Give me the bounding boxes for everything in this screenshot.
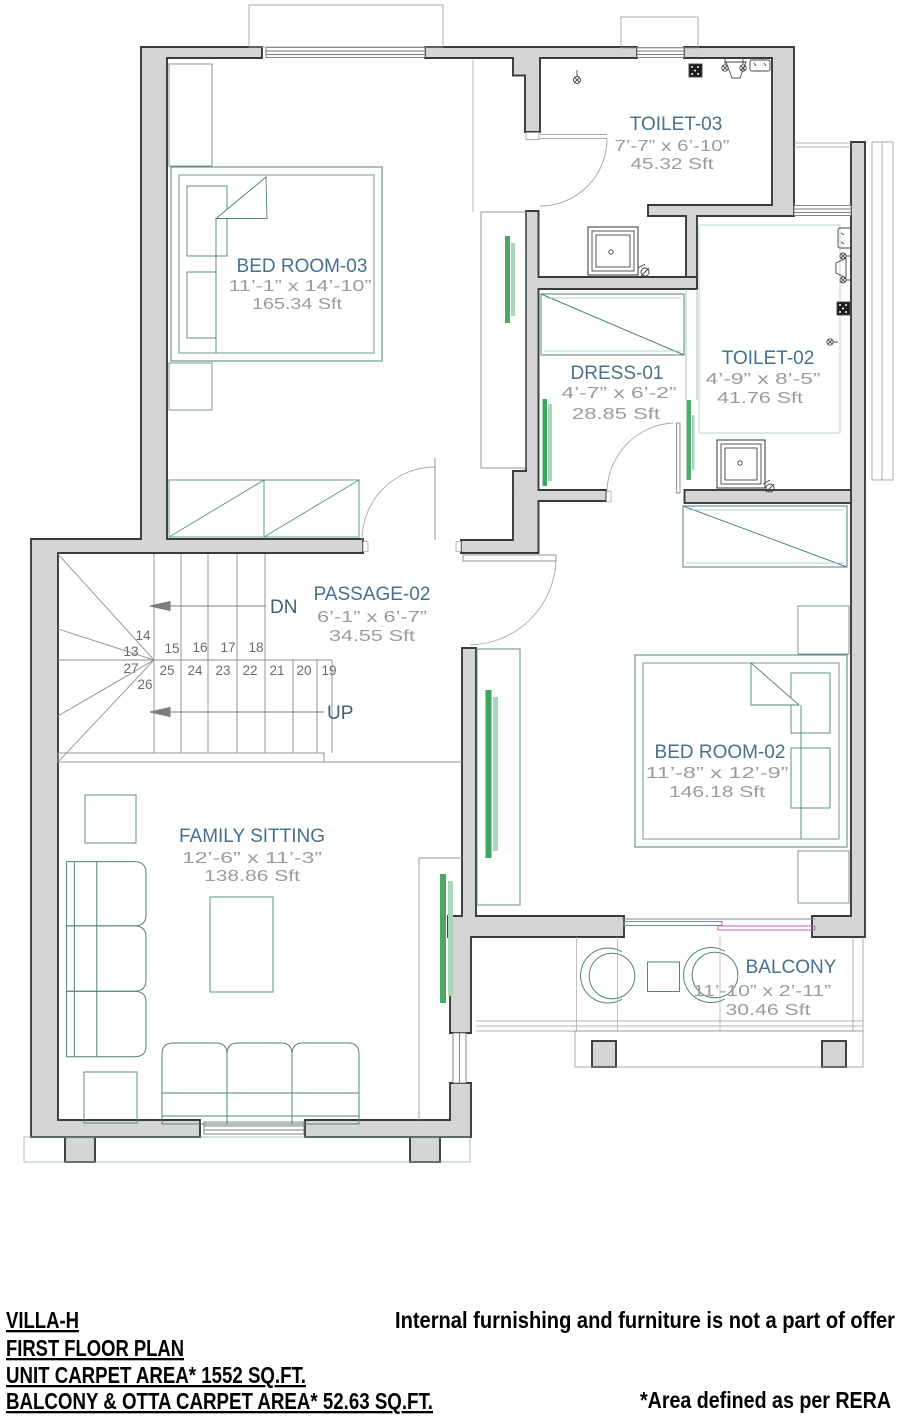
svg-text:DN: DN (270, 597, 297, 618)
svg-text:BALCONY & OTTA CARPET AREA* 52: BALCONY & OTTA CARPET AREA* 52.63 SQ.FT. (6, 1388, 433, 1414)
svg-text:BALCONY: BALCONY (746, 957, 837, 978)
svg-text:UNIT CARPET AREA* 1552 SQ.FT.: UNIT CARPET AREA* 1552 SQ.FT. (6, 1362, 306, 1388)
svg-text:17: 17 (220, 640, 235, 655)
svg-text:6’-1” x 6’-7”: 6’-1” x 6’-7” (317, 609, 427, 626)
svg-text:7’-7” x 6’-10”: 7’-7” x 6’-10” (615, 138, 730, 155)
svg-text:FAMILY SITTING: FAMILY SITTING (179, 826, 325, 847)
svg-text:12’-6” x 11’-3”: 12’-6” x 11’-3” (182, 850, 322, 867)
svg-text:4’-9” x 8’-5”: 4’-9” x 8’-5” (706, 371, 821, 388)
svg-text:26: 26 (137, 677, 152, 692)
svg-text:18: 18 (248, 640, 263, 655)
svg-text:*Area defined as per RERA: *Area defined as per RERA (640, 1387, 891, 1413)
svg-text:BED ROOM-02: BED ROOM-02 (655, 742, 786, 763)
svg-text:22: 22 (242, 663, 257, 678)
svg-text:FIRST FLOOR PLAN: FIRST FLOOR PLAN (6, 1335, 184, 1361)
svg-text:15: 15 (164, 641, 179, 656)
svg-text:13: 13 (123, 644, 138, 659)
svg-text:11’-8” x 12’-9”: 11’-8” x 12’-9” (646, 765, 789, 782)
svg-text:19: 19 (321, 663, 336, 678)
svg-text:41.76 Sft: 41.76 Sft (717, 390, 804, 407)
svg-text:146.18 Sft: 146.18 Sft (669, 784, 766, 801)
svg-text:11’-10” x 2’-11”: 11’-10” x 2’-11” (693, 983, 831, 1000)
svg-text:34.55 Sft: 34.55 Sft (329, 628, 416, 645)
svg-text:4’-7” x 6’-2”: 4’-7” x 6’-2” (562, 385, 677, 402)
svg-text:21: 21 (269, 663, 284, 678)
svg-text:Internal furnishing and furnit: Internal furnishing and furniture is not… (395, 1307, 895, 1333)
svg-text:165.34 Sft: 165.34 Sft (252, 296, 343, 313)
svg-text:PASSAGE-02: PASSAGE-02 (314, 584, 431, 605)
svg-text:UP: UP (327, 703, 353, 724)
svg-text:45.32 Sft: 45.32 Sft (631, 156, 715, 173)
svg-text:16: 16 (192, 640, 207, 655)
svg-text:DRESS-01: DRESS-01 (571, 363, 664, 384)
svg-text:VILLA-H: VILLA-H (6, 1307, 79, 1333)
svg-text:14: 14 (135, 628, 151, 643)
svg-text:11’-1” x 14’-10”: 11’-1” x 14’-10” (229, 278, 372, 295)
svg-text:23: 23 (215, 663, 230, 678)
svg-text:24: 24 (187, 663, 203, 678)
svg-text:25: 25 (159, 663, 174, 678)
svg-text:TOILET-03: TOILET-03 (630, 114, 723, 135)
svg-text:TOILET-02: TOILET-02 (722, 348, 815, 369)
svg-text:BED ROOM-03: BED ROOM-03 (237, 256, 368, 277)
svg-text:28.85 Sft: 28.85 Sft (572, 406, 661, 423)
svg-text:27: 27 (123, 661, 138, 676)
svg-text:20: 20 (296, 663, 311, 678)
svg-text:138.86 Sft: 138.86 Sft (204, 868, 301, 885)
svg-text:30.46 Sft: 30.46 Sft (726, 1002, 812, 1019)
